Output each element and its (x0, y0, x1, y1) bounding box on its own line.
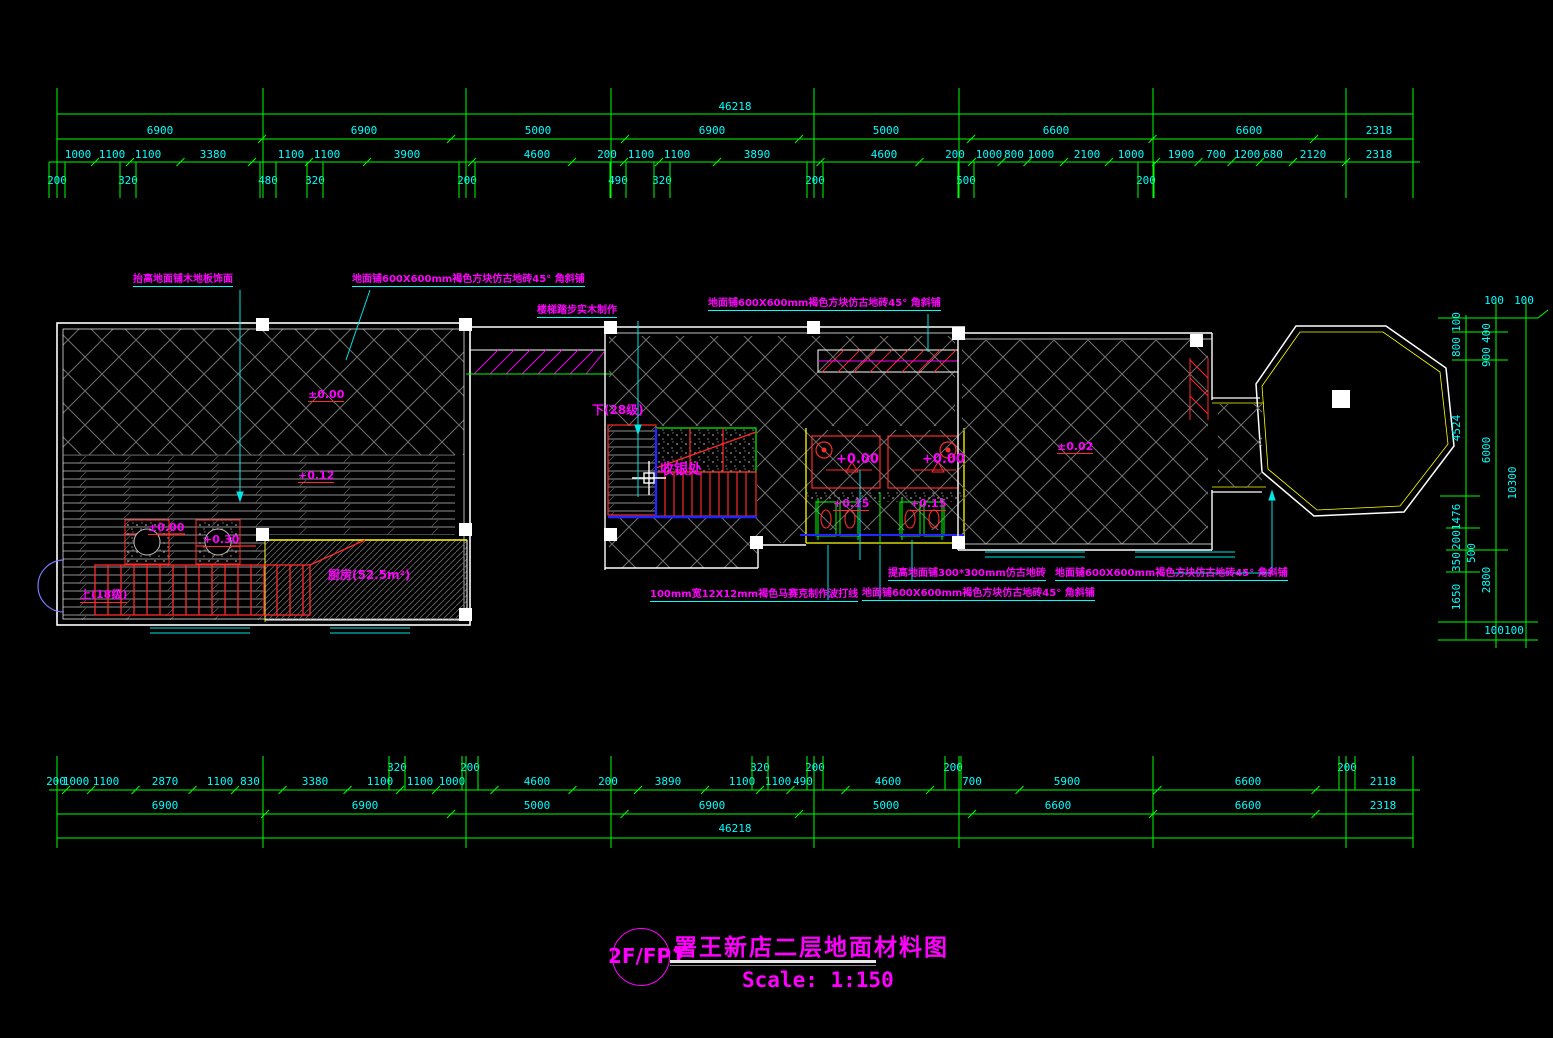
dim-label: 6600 (1235, 775, 1262, 788)
dim-label: 400 (1480, 323, 1493, 343)
dim-label: 3380 (200, 148, 227, 161)
dim-label: 6900 (699, 124, 726, 137)
dim-label: 500 (956, 174, 976, 187)
dim-label: 100 (1450, 312, 1463, 332)
dim-label: 10300 (1506, 466, 1519, 499)
plan-label: +0.00 (922, 452, 965, 467)
right-room (958, 333, 1235, 557)
dim-label: 1100 (314, 148, 341, 161)
dim-label: 1650 (1450, 584, 1463, 611)
dim-label: 490 (793, 775, 813, 788)
dim-label: 1100 (765, 775, 792, 788)
dim-label: 200 (47, 174, 67, 187)
plan-label: +0.15 (910, 497, 946, 511)
dim-label: 2100 (1074, 148, 1101, 161)
dim-label: 3890 (744, 148, 771, 161)
plan-label: ±0.00 (148, 521, 184, 535)
material-annotation: 地面铺600X600mm褐色方块仿古地砖45° 角斜铺 (1055, 564, 1288, 581)
dim-label: 4600 (871, 148, 898, 161)
dim-label: 3900 (394, 148, 421, 161)
corridor-strip (466, 327, 611, 374)
dim-label: 5900 (1054, 775, 1081, 788)
dim-label: 200 (805, 761, 825, 774)
plan-label: ±0.02 (1057, 440, 1093, 454)
dim-label: 100 (1504, 624, 1524, 637)
dim-label: 1100 (93, 775, 120, 788)
dim-label: 500 (1465, 543, 1478, 563)
title-underline (670, 960, 876, 963)
plan-label: 下(28级) (592, 401, 644, 418)
dim-label: 1000 (976, 148, 1003, 161)
plan-label: ±0.00 (308, 388, 344, 402)
toilets-block (800, 428, 964, 543)
dim-label: 6900 (699, 799, 726, 812)
dim-label: 320 (652, 174, 672, 187)
dim-label: 1100 (664, 148, 691, 161)
dim-label: 1000 (1118, 148, 1145, 161)
dim-label: 700 (962, 775, 982, 788)
dim-label: 4600 (524, 775, 551, 788)
dim-label: 1000 (439, 775, 466, 788)
dim-label: 200 (805, 174, 825, 187)
dim-label: 490 (608, 174, 628, 187)
floor-plan-drawing: 4621869006900500069005000660066002318100… (0, 0, 1553, 1038)
dim-label: 3890 (655, 775, 682, 788)
dim-label: 480 (258, 174, 278, 187)
dim-label: 5000 (525, 124, 552, 137)
dim-label: 4600 (524, 148, 551, 161)
dim-label: 1100 (729, 775, 756, 788)
dim-label: 1100 (135, 148, 162, 161)
drawing-scale: Scale: 1:150 (742, 968, 894, 992)
dim-label: 1100 (99, 148, 126, 161)
material-annotation: 100mm宽12X12mm褐色马赛克制作波打线 (650, 585, 858, 602)
dim-label: 6000 (1480, 437, 1493, 464)
dim-label: 2318 (1370, 799, 1397, 812)
dim-label: 2800 (1480, 567, 1493, 594)
dim-label: 1200 (1234, 148, 1261, 161)
dim-label: 1100 (628, 148, 655, 161)
door-swing (38, 560, 64, 612)
dim-label: 200 (945, 148, 965, 161)
cad-canvas: 4621869006900500069005000660066002318100… (0, 0, 1553, 1038)
title-underline-2 (670, 965, 876, 966)
dim-label: 1000 (65, 148, 92, 161)
dim-label: 1000 (63, 775, 90, 788)
dim-label: 200 (1450, 530, 1463, 550)
dim-label: 1100 (407, 775, 434, 788)
dim-label: 800 (1004, 148, 1024, 161)
material-annotation: 提高地面铺300*300mm仿古地砖 (888, 564, 1046, 581)
plan-label: 收银处 (660, 459, 702, 479)
dim-label: 700 (1206, 148, 1226, 161)
dim-label: 320 (387, 761, 407, 774)
title-block: 2F/FP1 署王新店二层地面材料图 Scale: 1:150 (600, 918, 1020, 998)
dim-label: 4600 (875, 775, 902, 788)
material-annotation: 地面铺600X600mm褐色方块仿古地砖45° 角斜铺 (352, 270, 585, 287)
dim-label: 2118 (1370, 775, 1397, 788)
dim-label: 320 (305, 174, 325, 187)
dim-label: 350 (1450, 552, 1463, 572)
dim-label: 3380 (302, 775, 329, 788)
plan-label: 上(18级) (80, 586, 127, 603)
dim-label: 4524 (1450, 414, 1463, 441)
material-annotation: 地面铺600X600mm褐色方块仿古地砖45° 角斜铺 (862, 584, 1095, 601)
plan-label: +0.12 (298, 469, 334, 483)
dim-label: 1100 (278, 148, 305, 161)
dim-label: 320 (118, 174, 138, 187)
dim-label: 5000 (873, 799, 900, 812)
dim-label: 200 (1136, 174, 1156, 187)
dim-label: 200 (943, 761, 963, 774)
material-annotation: 地面铺600X600mm褐色方块仿古地砖45° 角斜铺 (708, 294, 941, 311)
dim-label: 200 (598, 775, 618, 788)
material-annotation: 楼梯踏步实木制作 (537, 301, 617, 318)
dim-label: 2318 (1366, 124, 1393, 137)
plan-label: +0.30 (203, 533, 239, 547)
material-annotation: 抬高地面铺木地板饰面 (133, 270, 233, 287)
dim-label: 6600 (1043, 124, 1070, 137)
dim-label: 6900 (152, 799, 179, 812)
plan-label: 厨房(52.5m²) (328, 566, 410, 583)
bay-octagon (1212, 326, 1454, 516)
dim-label: 200 (597, 148, 617, 161)
plan-label: +0.00 (836, 452, 879, 467)
dim-label: 5000 (873, 124, 900, 137)
dim-label: 320 (750, 761, 770, 774)
dim-label: 200 (1337, 761, 1357, 774)
dim-label: 800 (1450, 337, 1463, 357)
dim-label: 46218 (718, 100, 751, 113)
dim-label: 6600 (1235, 799, 1262, 812)
dim-label: 680 (1263, 148, 1283, 161)
dim-label: 200 (457, 174, 477, 187)
dim-label: 6900 (351, 124, 378, 137)
dim-label: 5000 (524, 799, 551, 812)
dim-label: 1000 (1028, 148, 1055, 161)
dim-label: 6900 (352, 799, 379, 812)
dim-label: 2318 (1366, 148, 1393, 161)
dim-label: 6600 (1236, 124, 1263, 137)
dim-label: 2120 (1300, 148, 1327, 161)
plan-label: +0.15 (833, 497, 869, 511)
dim-label: 6600 (1045, 799, 1072, 812)
drawing-title: 署王新店二层地面材料图 (674, 928, 949, 962)
dim-label: 1476 (1450, 504, 1463, 531)
dim-label: 1100 (207, 775, 234, 788)
dim-label: 100 (1514, 294, 1534, 307)
dim-label: 200 (460, 761, 480, 774)
dim-label: 6900 (147, 124, 174, 137)
dim-label: 900 (1480, 347, 1493, 367)
dim-label: 1900 (1168, 148, 1195, 161)
dim-label: 2870 (152, 775, 179, 788)
dim-label: 46218 (718, 822, 751, 835)
dim-label: 100 (1484, 294, 1504, 307)
dim-label: 830 (240, 775, 260, 788)
dim-label: 100 (1484, 624, 1504, 637)
